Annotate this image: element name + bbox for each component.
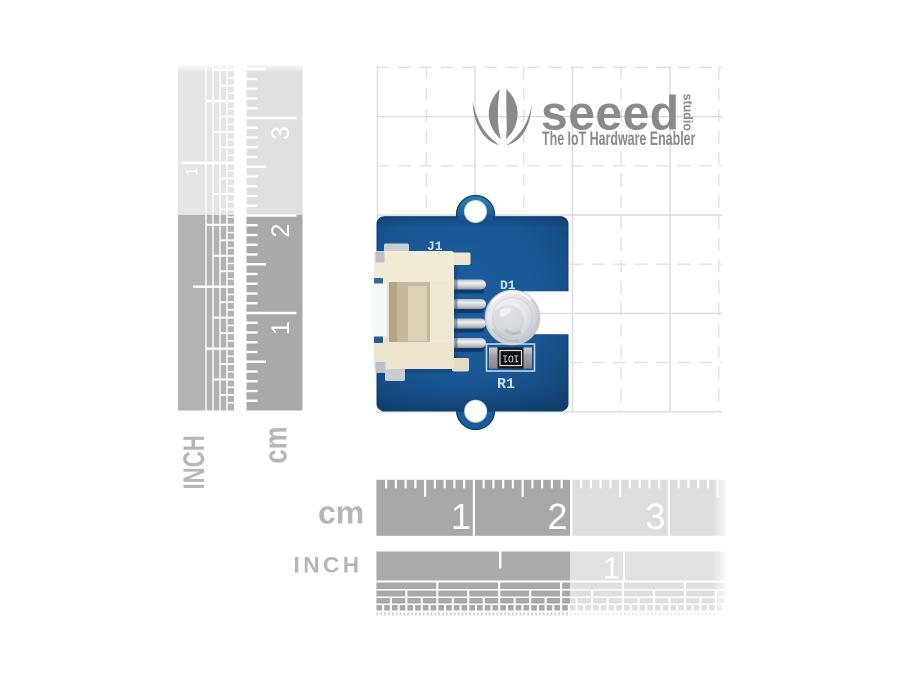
svg-text:101: 101 xyxy=(502,353,519,364)
svg-text:3: 3 xyxy=(645,496,665,537)
svg-text:1: 1 xyxy=(267,321,295,335)
svg-text:2: 2 xyxy=(267,224,295,238)
svg-text:The IoT Hardware Enabler: The IoT Hardware Enabler xyxy=(542,128,695,149)
svg-text:2: 2 xyxy=(547,496,567,537)
svg-text:studio: studio xyxy=(681,94,695,132)
svg-text:INCH: INCH xyxy=(294,553,363,578)
svg-text:cm: cm xyxy=(318,495,364,531)
svg-text:1: 1 xyxy=(183,167,202,176)
svg-text:cm: cm xyxy=(259,427,294,464)
svg-text:INCH: INCH xyxy=(177,435,211,489)
svg-text:D1: D1 xyxy=(500,278,516,293)
svg-text:3: 3 xyxy=(267,126,295,140)
svg-text:1: 1 xyxy=(603,551,620,586)
svg-text:1: 1 xyxy=(451,496,471,537)
svg-text:R1: R1 xyxy=(497,376,515,393)
